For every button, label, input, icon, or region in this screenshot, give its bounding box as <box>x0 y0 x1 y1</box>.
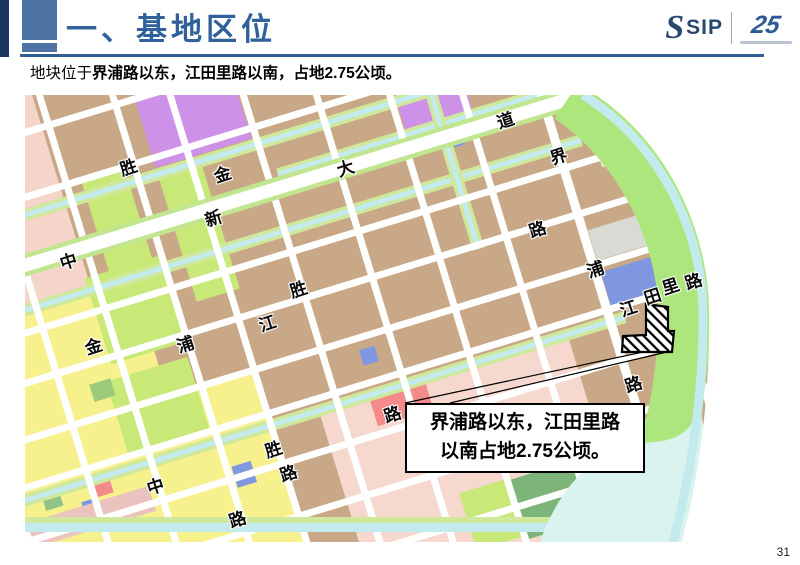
slide: 一、基地区位 S SIP 25 地块位于界浦路以东，江田里路以南，占地2.75公… <box>0 0 800 565</box>
logo-caption-line <box>740 41 792 44</box>
river-verge <box>25 517 560 523</box>
sip-logo: S SIP 25 <box>665 6 792 50</box>
sip-swoosh-icon: S <box>665 11 684 45</box>
title-accent-square-small <box>22 43 57 52</box>
site-callout-box: 界浦路以东，江田里路 以南占地2.75公顷。 <box>405 403 645 473</box>
map-svg <box>25 95 762 542</box>
intro-bold: 界浦路以东，江田里路以南，占地2.75公顷。 <box>92 65 401 82</box>
callout-line2: 以南占地2.75公顷。 <box>407 437 643 466</box>
sip-logo-text: SIP <box>686 16 723 40</box>
river <box>25 523 570 532</box>
page-title: 一、基地区位 <box>66 4 276 49</box>
title-accent-square <box>22 0 57 40</box>
left-accent-bar <box>0 0 9 57</box>
callout-line1: 界浦路以东，江田里路 <box>407 408 643 437</box>
page-number: 31 <box>777 545 790 559</box>
header-rule <box>20 54 764 57</box>
logo-divider <box>731 12 732 44</box>
anniversary-25-logo: 25 <box>740 13 792 44</box>
intro-normal: 地块位于 <box>30 65 92 82</box>
intro-text: 地块位于界浦路以东，江田里路以南，占地2.75公顷。 <box>30 61 401 83</box>
location-map: 胜金新大道界路浦中金浦江胜江田里路路路胜路中路 界浦路以东，江田里路 以南占地2… <box>25 95 762 542</box>
